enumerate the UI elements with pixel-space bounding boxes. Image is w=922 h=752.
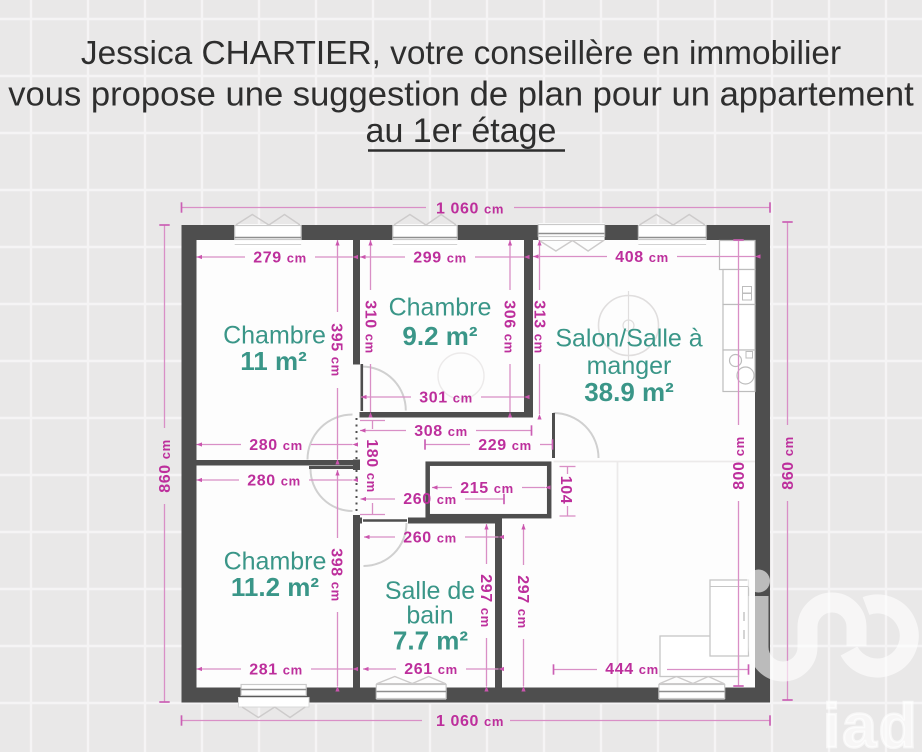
svg-text:9.2 m²: 9.2 m²: [402, 321, 477, 351]
svg-text:229 cm: 229 cm: [478, 437, 532, 454]
svg-text:279 cm: 279 cm: [253, 250, 307, 267]
svg-text:308 cm: 308 cm: [414, 423, 468, 440]
svg-text:Jessica CHARTIER, votre consei: Jessica CHARTIER, votre conseillère en i…: [81, 35, 841, 72]
svg-text:1 060 cm: 1 060 cm: [436, 201, 504, 218]
svg-text:iad: iad: [823, 692, 919, 752]
svg-text:vous propose une suggestion de: vous propose une suggestion de plan pour…: [8, 76, 914, 114]
svg-text:860 cm: 860 cm: [157, 439, 174, 493]
svg-text:301 cm: 301 cm: [419, 390, 473, 407]
svg-text:280 cm: 280 cm: [247, 473, 301, 490]
svg-text:306 cm: 306 cm: [501, 300, 518, 354]
svg-text:au 1er étage: au 1er étage: [366, 112, 557, 150]
svg-text:800 cm: 800 cm: [731, 436, 748, 490]
svg-text:180 cm: 180 cm: [363, 439, 380, 493]
svg-text:manger: manger: [587, 352, 672, 380]
svg-text:260 cm: 260 cm: [403, 491, 457, 508]
svg-text:313 cm: 313 cm: [531, 300, 548, 354]
svg-text:310 cm: 310 cm: [362, 300, 379, 354]
svg-text:7.7 m²: 7.7 m²: [393, 626, 468, 656]
svg-text:280 cm: 280 cm: [249, 437, 303, 454]
svg-text:398 cm: 398 cm: [328, 548, 345, 602]
svg-text:11.2 m²: 11.2 m²: [231, 572, 320, 602]
svg-text:299 cm: 299 cm: [413, 250, 467, 267]
svg-text:Salon/Salle à: Salon/Salle à: [555, 325, 702, 353]
svg-text:215 cm: 215 cm: [460, 480, 514, 497]
svg-text:1 060 cm: 1 060 cm: [436, 713, 504, 730]
svg-text:408 cm: 408 cm: [615, 249, 669, 266]
svg-text:281 cm: 281 cm: [249, 662, 303, 679]
svg-text:11 m²: 11 m²: [240, 346, 307, 376]
svg-text:860 cm: 860 cm: [780, 436, 797, 490]
svg-text:395 cm: 395 cm: [328, 323, 345, 377]
svg-text:297 cm: 297 cm: [514, 575, 531, 629]
svg-text:104: 104: [557, 476, 574, 505]
svg-text:Chambre: Chambre: [389, 294, 492, 322]
svg-text:38.9 m²: 38.9 m²: [584, 377, 674, 407]
svg-text:260 cm: 260 cm: [403, 530, 457, 547]
svg-text:261 cm: 261 cm: [404, 661, 458, 678]
svg-text:297 cm: 297 cm: [477, 574, 494, 628]
svg-text:444 cm: 444 cm: [605, 661, 659, 678]
